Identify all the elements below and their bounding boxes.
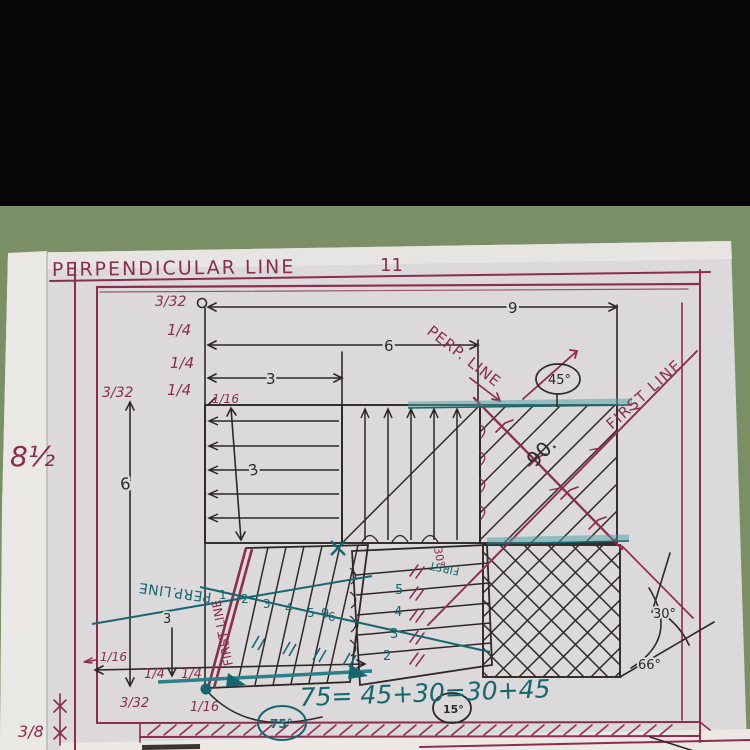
bottom-height-3: 3 (163, 612, 171, 627)
paper-sheet (0, 241, 747, 750)
offset-3-32: 3/32 (155, 294, 187, 310)
left-margin-3-32: 3/32 (102, 385, 134, 401)
bottom-3-32: 3/32 (120, 696, 149, 711)
inset-1-16: 1/16 (212, 392, 239, 406)
tick-4: 4 (285, 601, 293, 615)
col-5: 5 (395, 583, 403, 598)
page-title: PERPENDICULAR LINE (52, 256, 296, 281)
angle-45-label: 45° (548, 373, 571, 388)
offset-1-4-b: 1/4 (170, 354, 194, 372)
bottom-left-fraction: 3/8 (18, 722, 44, 741)
tick-2: 2 (241, 592, 249, 606)
angle-66-label: 66° (638, 658, 661, 673)
tick-5: 5 (307, 606, 315, 620)
bottom-1-4-b: 1/4 (181, 667, 202, 682)
angle-75-label: 75° (270, 717, 293, 731)
tick-3: 3 (263, 597, 271, 611)
tick-1: 1 (219, 588, 227, 602)
width-6: 6 (384, 337, 394, 355)
bottom-1-16: 1/16 (190, 700, 219, 715)
col-4: 4 (394, 605, 402, 620)
offset-1-4-a: 1/4 (167, 321, 191, 339)
width-9: 9 (508, 299, 518, 317)
offset-1-4-c: 1/4 (167, 381, 191, 399)
photo-of-drafting-sheet: PERPENDICULAR LINE 11 8½ 3/8 (0, 0, 750, 750)
dark-top-band (0, 0, 750, 212)
angle-30-label: 30° (653, 607, 676, 622)
page-number: 11 (380, 255, 403, 276)
bottom-1-16-left: 1/16 (100, 650, 127, 664)
col-3: 3 (390, 627, 398, 642)
width-3: 3 (266, 370, 276, 388)
bottom-1-4-a: 1/4 (144, 667, 165, 682)
col-2: 2 (383, 649, 391, 664)
sheet-height-label: 8½ (10, 440, 55, 473)
cropped-caption-mark (142, 744, 200, 750)
drawing-photo: PERPENDICULAR LINE 11 8½ 3/8 (0, 0, 750, 750)
paper-left-strip (0, 251, 47, 750)
tick-9: 9 (321, 607, 329, 622)
